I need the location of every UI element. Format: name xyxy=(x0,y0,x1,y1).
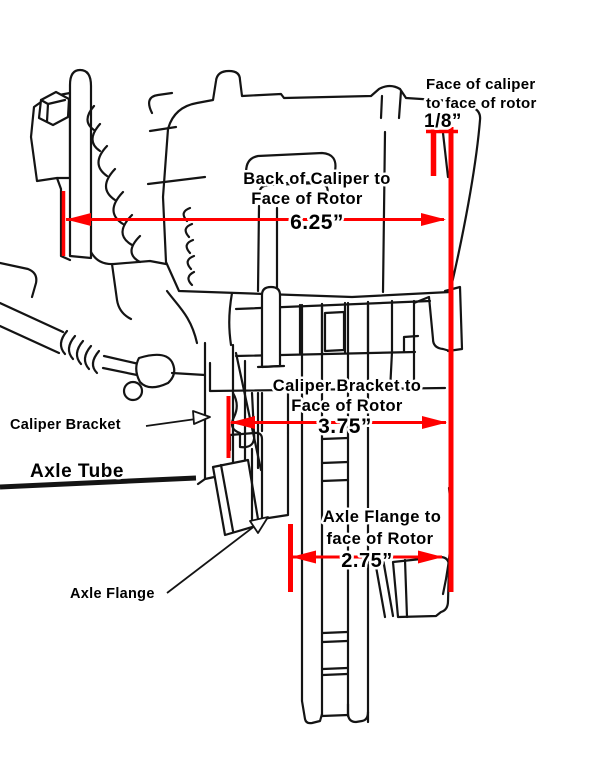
knuckle-link xyxy=(172,373,205,375)
dim-back-of-caliper-label-line2: Face of Rotor xyxy=(251,190,363,208)
tie-rod-threads xyxy=(61,331,99,373)
tie-rod-shaft xyxy=(0,303,63,353)
axle-flange-pointer-line xyxy=(167,525,256,593)
knuckle-curves xyxy=(167,291,232,345)
dim-axle-flange-label-line1: Axle Flange to xyxy=(323,508,441,526)
rail-dividers xyxy=(300,301,414,353)
left-arm-stub xyxy=(0,263,36,297)
guide-pin xyxy=(262,287,280,367)
dim-back-of-caliper-label-line1: Back of Caliper to xyxy=(243,170,390,188)
dim-back-of-caliper-value: 6.25” xyxy=(290,211,344,234)
caliper-bracket-pointer-arrowhead xyxy=(193,411,210,424)
dim-3-75-arrow-right xyxy=(422,416,447,429)
rotor-vent-rungs-upper xyxy=(322,438,348,481)
part-label-axle-flange: Axle Flange xyxy=(70,586,155,602)
dim-axle-flange-value: 2.75” xyxy=(341,550,392,572)
rotor-vent-rungs-lower xyxy=(322,632,348,716)
ball-joint-housing xyxy=(136,355,174,387)
rail-hook xyxy=(404,297,450,352)
part-label-axle-tube: Axle Tube xyxy=(30,461,124,482)
line-art xyxy=(0,70,480,723)
dim-face-of-caliper-label-line2: to face of rotor xyxy=(426,95,537,112)
guide-pin-cap xyxy=(258,366,284,367)
dim-caliper-bracket-value: 3.75” xyxy=(318,415,372,438)
caliper-bracket-pointer-line xyxy=(146,419,196,426)
dim-face-of-caliper-value: 1/8” xyxy=(424,111,462,132)
dim-axle-flange-label-line2: face of Rotor xyxy=(327,530,434,548)
rotor-foot-right xyxy=(348,704,368,722)
dim-face-of-caliper-label-line1: Face of caliper xyxy=(426,76,536,93)
diagram-canvas: Face of caliper to face of rotor 1/8” Ba… xyxy=(0,0,600,765)
rotor-foot-left xyxy=(302,701,322,723)
mount-strip xyxy=(70,70,91,258)
dim-2-75-arrow-left xyxy=(291,551,316,564)
rail-inset xyxy=(325,312,344,351)
tie-rod-neck xyxy=(103,356,139,375)
caliper-lower-block xyxy=(393,557,449,617)
ball-joint-stud xyxy=(124,382,142,400)
part-label-caliper-bracket: Caliper Bracket xyxy=(10,417,121,433)
coil-spring xyxy=(88,106,141,262)
hex-bolt xyxy=(39,92,69,125)
dim-caliper-bracket-label-line1: Caliper Bracket to xyxy=(273,377,421,395)
brake-caliper-diagram: Face of caliper to face of rotor 1/8” Ba… xyxy=(0,0,600,765)
dim-caliper-bracket-label-line2: Face of Rotor xyxy=(291,397,403,415)
upper-arm xyxy=(91,252,166,319)
